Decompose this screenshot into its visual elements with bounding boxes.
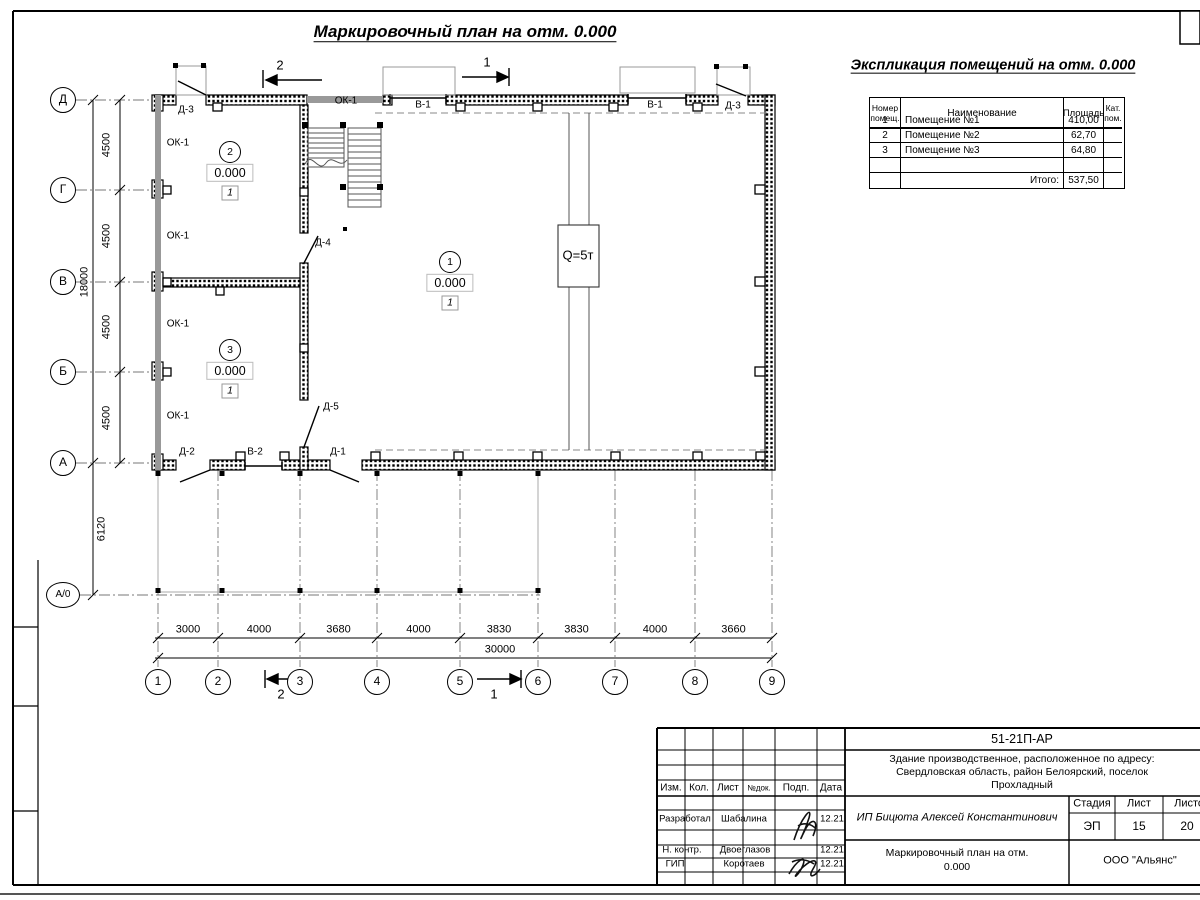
table-cell: 64,80 (1064, 143, 1104, 158)
role-date: 12.21 (820, 860, 844, 871)
table-cell (870, 173, 901, 188)
table-cell (1104, 158, 1122, 173)
table-cell: Итого: (901, 173, 1064, 188)
table-cell (1104, 113, 1122, 128)
col-izm: Изм. (660, 782, 681, 794)
role-date: 12.21 (820, 815, 844, 826)
section-mark-1: 1 (490, 688, 497, 703)
table-cell: 410,00 (1064, 113, 1104, 128)
axis-circle-Б: Б (50, 359, 76, 385)
signatures (789, 812, 820, 876)
room-type-mark: 1 (222, 384, 239, 399)
mark-label-Д-2: Д-2 (179, 446, 195, 458)
section-mark-1: 1 (483, 56, 490, 71)
dim-label: 3830 (564, 624, 588, 637)
dim-label: 4500 (101, 405, 114, 429)
mark-label-ОК-1: ОК-1 (335, 95, 358, 107)
mark-label-Д-3: Д-3 (725, 100, 741, 112)
project-line: Здание производственное, расположенное п… (889, 753, 1154, 765)
room-level-mark: 0.000 (206, 164, 253, 182)
room-type-mark: 1 (222, 186, 239, 201)
mark-label-ОК-1: ОК-1 (167, 230, 190, 242)
role-label: Разработал (659, 815, 711, 826)
axis-circle-Д: Д (50, 87, 76, 113)
porches (176, 66, 750, 95)
sheet-title-line: 0.000 (944, 861, 970, 873)
room-type-mark: 1 (442, 296, 459, 311)
mark-label-Д-5: Д-5 (323, 401, 339, 413)
table-cell: Помещение №3 (901, 143, 1064, 158)
mark-label-ОК-1: ОК-1 (167, 318, 190, 330)
mark-label-В-1: В-1 (415, 99, 431, 111)
role-label: ГИП (666, 860, 685, 871)
dim-label: 3000 (176, 624, 200, 637)
axis-circle-3: 3 (287, 669, 313, 695)
mark-label-ОК-1: ОК-1 (167, 410, 190, 422)
table-cell: 2 (870, 128, 901, 143)
axis-circle-А: А (50, 450, 76, 476)
sheets-label: Листов (1174, 798, 1200, 811)
role-name: Коротаев (723, 860, 764, 871)
role-label: Н. контр. (662, 846, 701, 857)
table-cell (1104, 128, 1122, 143)
axis-circle-А/0: А/0 (46, 582, 80, 608)
role-date: 12.21 (820, 846, 844, 857)
table-cell (901, 158, 1064, 173)
table-cell: 537,50 (1064, 173, 1104, 188)
table-cell (1104, 173, 1122, 188)
mark-label-Д-3: Д-3 (178, 104, 194, 116)
axis-circle-6: 6 (525, 669, 551, 695)
project-line: Прохладный (991, 779, 1053, 791)
table-cell: 3 (870, 143, 901, 158)
col-data: Дата (820, 782, 842, 794)
project-line: Свердловская область, район Белоярский, … (896, 766, 1148, 778)
table-cell (1064, 158, 1104, 173)
room-level-mark: 0.000 (206, 362, 253, 380)
porch-columns (173, 63, 748, 69)
table-cell: 1 (870, 113, 901, 128)
axis-circle-9: 9 (759, 669, 785, 695)
table-cell: Помещение №2 (901, 128, 1064, 143)
dim-label: 4000 (406, 624, 430, 637)
axis-circle-7: 7 (602, 669, 628, 695)
dim-label: 4500 (101, 224, 114, 248)
axis-lines (76, 100, 772, 667)
section-mark-2: 2 (276, 59, 283, 74)
dimension-lines (88, 95, 777, 663)
room-number-tag: 3 (219, 339, 241, 361)
dim-label: 3680 (326, 624, 350, 637)
client-name: ИП Бицюта Алексей Константинович (857, 812, 1058, 825)
dim-label: 4500 (101, 315, 114, 339)
col-list: Лист (717, 782, 739, 794)
dim-label-total: 18000 (79, 266, 92, 297)
col-kol: Кол. (689, 782, 709, 794)
doc-number: 51-21П-АР (991, 732, 1053, 746)
room-number-tag: 1 (439, 251, 461, 273)
col-podp: Подп. (783, 782, 810, 794)
stairs (305, 128, 381, 207)
stage-value: ЭП (1083, 820, 1100, 834)
table-cell: Помещение №1 (901, 113, 1064, 128)
explication-table: Номер помещ. Наименование Площадь Кат. п… (869, 97, 1125, 189)
organization-name: ООО "Альянс" (1103, 855, 1177, 868)
dim-label: 3660 (721, 624, 745, 637)
room-level-mark: 0.000 (426, 274, 473, 292)
mark-label-ОК-1: ОК-1 (167, 137, 190, 149)
dim-label: 4500 (101, 133, 114, 157)
mark-label-Д-1: Д-1 (330, 446, 346, 458)
sheet-label: Лист (1127, 798, 1151, 811)
mark-label-Д-4: Д-4 (315, 237, 331, 249)
axis-circle-5: 5 (447, 669, 473, 695)
col-doc: №док. (747, 783, 770, 792)
table-cell (1104, 143, 1122, 158)
mark-label-В-1: В-1 (647, 99, 663, 111)
axis-circle-8: 8 (682, 669, 708, 695)
drawing-sheet: Маркировочный план на отм. 0.000 Эксплик… (0, 0, 1200, 900)
sheets-value: 20 (1180, 820, 1193, 834)
table-cell: 62,70 (1064, 128, 1104, 143)
stage-label: Стадия (1073, 798, 1111, 811)
section-mark-2: 2 (277, 688, 284, 703)
axis-circle-4: 4 (364, 669, 390, 695)
dim-label: 4000 (643, 624, 667, 637)
axis-circle-Г: Г (50, 177, 76, 203)
canopy-columns (156, 471, 541, 593)
axis-circle-1: 1 (145, 669, 171, 695)
axis-circle-2: 2 (205, 669, 231, 695)
crane-capacity-label: Q=5т (563, 249, 594, 264)
dim-label: 3830 (487, 624, 511, 637)
room-number-tag: 2 (219, 141, 241, 163)
page-title: Маркировочный план на отм. 0.000 (314, 22, 617, 42)
sheet-title-line: Маркировочный план на отм. (886, 847, 1029, 859)
role-name: Двоеглазов (720, 846, 771, 857)
sheet-value: 15 (1132, 820, 1145, 834)
dim-label-total: 30000 (485, 644, 516, 657)
dim-label: 4000 (247, 624, 271, 637)
table-cell (870, 158, 901, 173)
mark-label-В-2: В-2 (247, 446, 263, 458)
role-name: Шабалина (721, 815, 767, 826)
axis-circle-В: В (50, 269, 76, 295)
explication-title: Экспликация помещений на отм. 0.000 (851, 58, 1136, 75)
dim-label: 6120 (96, 517, 109, 541)
canopy (158, 470, 538, 592)
